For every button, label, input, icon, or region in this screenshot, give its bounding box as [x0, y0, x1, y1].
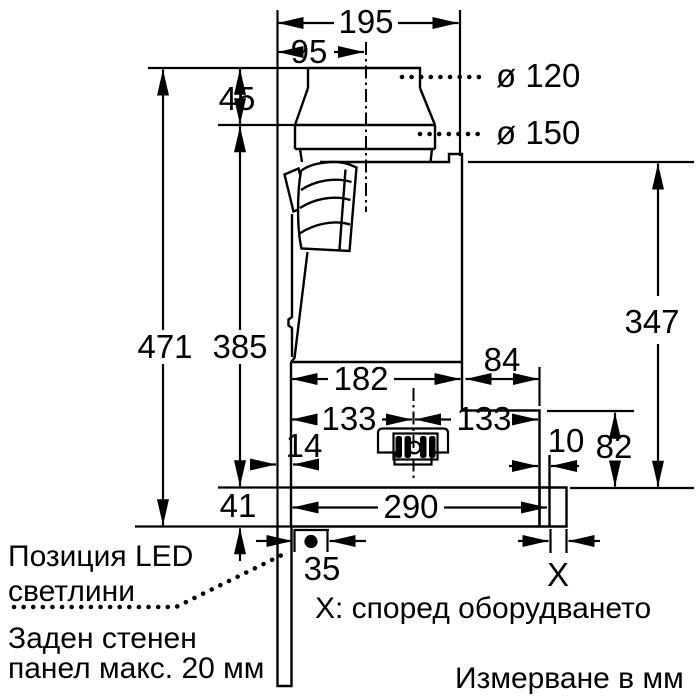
dim-385: 385 [212, 126, 267, 486]
d150-label: ø 150 [496, 114, 580, 151]
diameter-leaders: ø 120 ø 150 [402, 57, 580, 151]
dim-45: 45 [219, 69, 256, 125]
led-position-label-line1: Позиция LED [8, 540, 193, 573]
dim-95-label: 95 [291, 33, 328, 70]
dim-41: 41 [220, 487, 257, 561]
rear-panel-label-line1: Заден стенен [8, 622, 197, 655]
rear-edge-line [289, 214, 293, 357]
dim-x-label: X [547, 556, 569, 593]
visor-stack-outline [298, 162, 356, 251]
dim-82-label: 82 [596, 428, 633, 465]
dim-10: 10 [509, 422, 584, 466]
hood-dimension-diagram: ø 120 ø 150 195 95 45 471 385 347 182 [0, 0, 700, 700]
annotations: Позиция LED светлини Заден стенен панел … [8, 540, 684, 695]
dim-14-label: 14 [286, 427, 323, 464]
units-note-label: Измерване в мм [455, 662, 684, 695]
dim-35-label: 35 [304, 550, 341, 587]
dim-385-label: 385 [212, 328, 267, 365]
dim-195-label: 195 [338, 3, 393, 40]
dim-84-label: 84 [484, 341, 521, 378]
rear-wall-panel-outline [278, 527, 292, 686]
dim-133-right: 133 [415, 400, 538, 437]
x-note-label: X: според оборудването [315, 592, 651, 625]
dim-471: 471 [137, 70, 192, 526]
dim-x: X [518, 529, 600, 593]
dim-133-left-label: 133 [321, 400, 376, 437]
dim-82: 82 [596, 413, 633, 487]
dim-84: 84 [466, 341, 540, 379]
bracket-rib-1 [396, 436, 403, 458]
dim-471-label: 471 [137, 328, 192, 365]
dim-133-right-label: 133 [456, 400, 511, 437]
visor-flaps [285, 162, 357, 251]
led-position-label-line2: светлини [8, 575, 135, 608]
dim-290: 290 [293, 488, 548, 525]
rear-wall-panel [278, 527, 292, 686]
dim-10-label: 10 [548, 422, 585, 459]
hood-dimension-diagram-page: ø 120 ø 150 195 95 45 471 385 347 182 [0, 0, 700, 700]
dim-182: 182 [292, 360, 461, 397]
dim-347-label: 347 [624, 303, 679, 340]
bracket-rib-4 [429, 436, 436, 458]
dim-41-label: 41 [220, 487, 257, 524]
dim-182-label: 182 [333, 360, 388, 397]
d120-label: ø 120 [496, 57, 580, 94]
rear-panel-label-line2: панел макс. 20 мм [8, 652, 264, 685]
dim-45-label: 45 [219, 80, 256, 117]
dim-14: 14 [250, 427, 322, 465]
dim-347: 347 [624, 164, 679, 487]
led-dot [304, 535, 317, 548]
front-slant-line [291, 252, 308, 362]
dim-290-label: 290 [383, 488, 438, 525]
